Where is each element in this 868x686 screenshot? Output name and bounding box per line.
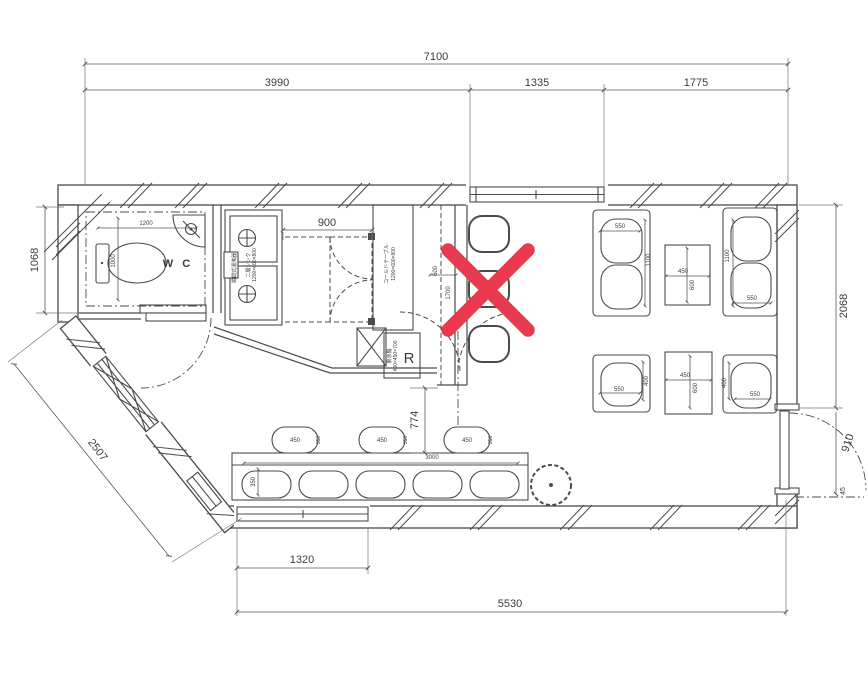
fixture-dimension-labels: 1200 1000 600 1700 550 1100 1100 550 450…: [111, 221, 761, 487]
table: [665, 352, 712, 414]
dim-bench-bottom-d: 350: [251, 476, 257, 487]
extension-lines: [8, 58, 843, 616]
dim-diagonal-wall: 2507: [85, 437, 110, 464]
dim-table-l: 600: [690, 279, 696, 290]
wall-top: [58, 185, 797, 205]
dining-seating: [593, 208, 777, 414]
dim-seg-left: 3990: [265, 77, 289, 89]
dim-wc-width: 1200: [139, 221, 153, 227]
red-x-annotation: [448, 250, 528, 330]
dim-stool-d: 350: [316, 436, 322, 445]
top-window: [466, 182, 608, 208]
dim-table-w: 450: [678, 269, 689, 275]
wall-left: [58, 205, 78, 322]
dimension-lines: [14, 64, 836, 612]
ice-maker-size-label: 400×450×700: [393, 340, 399, 371]
entry-door-swing: [789, 413, 866, 490]
dim-cushion: 550: [750, 392, 761, 398]
diagonal-window: [90, 353, 162, 435]
wc-door-swing: [141, 318, 211, 388]
corner-sink: [173, 215, 205, 247]
floor-plan-page: W C 瞬間式湯沸器 二層シンク 1200×600×800 コールドテーブル 1…: [0, 0, 868, 686]
dim-counter-clearance: 774: [409, 411, 421, 429]
entry-door: [780, 411, 866, 497]
dim-bench-d: 400: [722, 377, 728, 388]
dim-counter-w: 600: [433, 265, 439, 276]
dim-entry-gap: 45: [840, 487, 847, 495]
floor-plan-drawing: W C 瞬間式湯沸器 二層シンク 1200×600×800 コールドテーブル 1…: [0, 0, 868, 686]
wc-label: W C: [163, 258, 193, 270]
dim-bench-l: 1100: [725, 249, 731, 263]
dim-bench-d: 400: [644, 375, 650, 386]
dim-seg-mid: 1335: [525, 77, 549, 89]
dim-stool-w: 450: [377, 438, 388, 444]
dim-right-height: 2068: [838, 294, 850, 318]
dim-table-l: 600: [693, 382, 699, 393]
dim-stool-d: 350: [488, 436, 494, 445]
counter-stool: [469, 216, 509, 252]
dim-bottom-overall: 5530: [498, 598, 522, 610]
dim-kitchen-opening: 900: [318, 217, 336, 229]
dim-seg-right: 1775: [684, 77, 708, 89]
window-bench: [232, 453, 528, 500]
dim-stool-w: 450: [290, 438, 301, 444]
dim-bench-bottom-l: 3000: [425, 455, 439, 461]
entry-door-leaf: [780, 411, 789, 489]
ice-maker: R 製氷機 400×450×700: [384, 333, 420, 378]
dim-table-w: 450: [680, 373, 691, 379]
dim-cushion: 550: [614, 387, 625, 393]
dim-overall-top: 7100: [424, 51, 448, 63]
plant-icon: [531, 465, 571, 505]
refrigerator-label: R: [404, 350, 415, 367]
dim-stool-d: 350: [403, 436, 409, 445]
dim-left-height: 1068: [29, 248, 41, 272]
cold-table-name-label: コールドテーブル: [383, 244, 390, 284]
counter-stool: [469, 326, 509, 362]
dim-stool-w: 450: [462, 438, 473, 444]
table: [665, 245, 710, 305]
cold-table-size-label: 1200×600×800: [391, 247, 397, 281]
dim-wc-depth: 1000: [111, 254, 117, 268]
dim-entry-door: 910: [840, 432, 857, 453]
sink-size-label: 1200×600×800: [252, 248, 258, 282]
ice-maker-name-label: 製氷機: [386, 348, 393, 363]
dim-cushion: 550: [747, 296, 758, 302]
dim-counter-l: 1700: [446, 286, 452, 300]
door-jamb-top: [775, 404, 799, 410]
dim-bench-l: 1100: [646, 253, 652, 267]
equipment-box: [357, 328, 386, 366]
kitchen-pass-doors: [285, 233, 375, 325]
wall-right-upper: [777, 205, 797, 408]
dim-bottom-window: 1320: [290, 554, 314, 566]
bottom-window: [234, 503, 370, 527]
wall-diagonal: [59, 315, 242, 534]
dim-cushion: 550: [615, 224, 626, 230]
water-heater-label: 瞬間式湯沸器: [231, 253, 238, 283]
